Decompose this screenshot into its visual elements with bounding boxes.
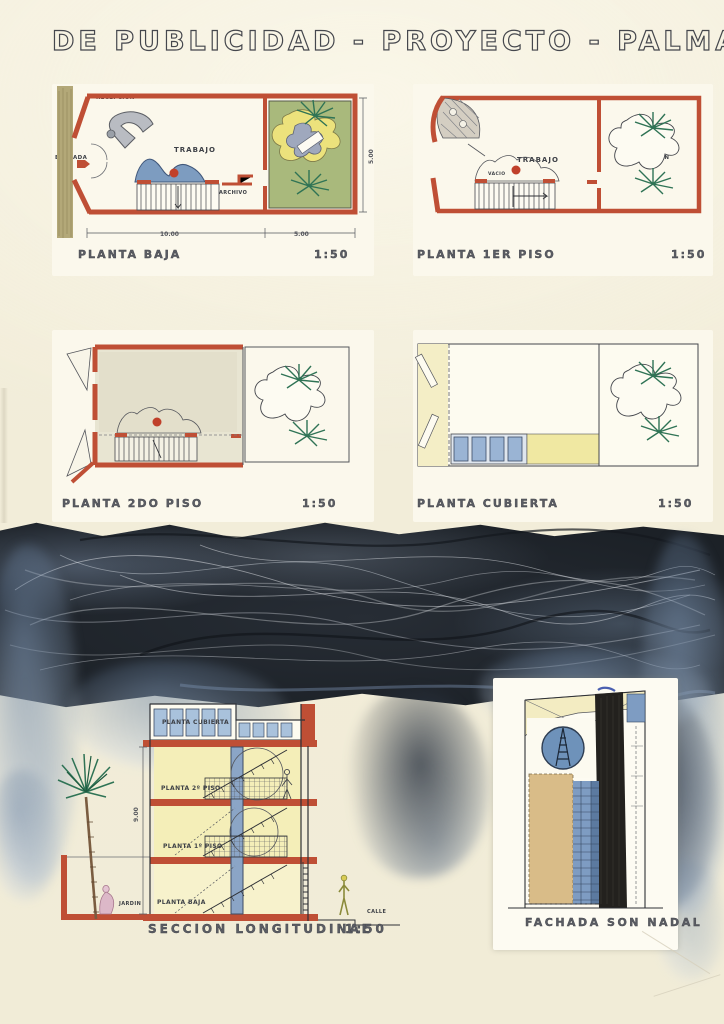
planta-1er-drawing xyxy=(413,86,713,221)
scale-planta-baja: 1:50 xyxy=(314,248,349,261)
dim-depth: 5.00 xyxy=(368,149,375,164)
label-section-planta-2: PLANTA 2º PISO xyxy=(161,786,221,792)
scale-planta-cubierta: 1:50 xyxy=(658,497,693,510)
planta-baja-drawing xyxy=(57,86,369,246)
scale-planta-1er: 1:50 xyxy=(671,248,706,261)
scale-planta-2do: 1:50 xyxy=(302,497,337,510)
plan-planta-baja: RECEPCION ENTRADA TRABAJO ARCHIVO TERRAZ… xyxy=(52,84,374,276)
facade-drawing xyxy=(503,686,668,916)
caption-fachada: FACHADA SON NADAL xyxy=(525,916,702,929)
scale-seccion: 1:50 xyxy=(345,922,387,936)
caption-planta-baja: PLANTA BAJA xyxy=(78,248,181,261)
label-section-planta-baja: PLANTA BAJA xyxy=(157,900,206,906)
section-drawing: PLANTA CUBIERTA PLANTA 2º PISO PLANTA 1º… xyxy=(55,692,407,947)
dim-section-height: 9.00 xyxy=(133,807,140,822)
board-title: DE PUBLICIDAD - PROYECTO - PALMA xyxy=(52,26,712,57)
caption-planta-1er: PLANTA 1ER PISO xyxy=(417,248,556,261)
drawing-board: DE PUBLICIDAD - PROYECTO - PALMA xyxy=(0,0,724,1024)
label-section-planta-cubierta: PLANTA CUBIERTA xyxy=(162,720,229,726)
plan-planta-cubierta: VACIO JARDIN PLANTA CUBIERTA 1:50 xyxy=(413,330,713,522)
caption-planta-2do: PLANTA 2DO PISO xyxy=(62,497,203,510)
label-section-planta-1: PLANTA 1º PISO xyxy=(163,844,223,850)
label-section-calle: CALLE xyxy=(367,910,386,915)
plan-planta-1er-piso: TRABAJO VACIO VACIO JARDIN PLANTA 1ER PI… xyxy=(413,84,713,276)
caption-seccion: SECCION LONGITUDINAL xyxy=(148,922,372,936)
planta-cubierta-drawing xyxy=(413,332,713,472)
facade-card: FACHADA SON NADAL xyxy=(493,678,678,950)
paper-crease-left xyxy=(0,388,8,523)
caption-planta-cubierta: PLANTA CUBIERTA xyxy=(417,497,559,510)
plan-planta-2do-piso: TRABAJO VACIO VACIO JARDIN PLANTA 2DO PI… xyxy=(52,330,374,522)
planta-2do-drawing xyxy=(57,332,369,482)
label-section-jardin: JARDIN xyxy=(119,902,141,907)
